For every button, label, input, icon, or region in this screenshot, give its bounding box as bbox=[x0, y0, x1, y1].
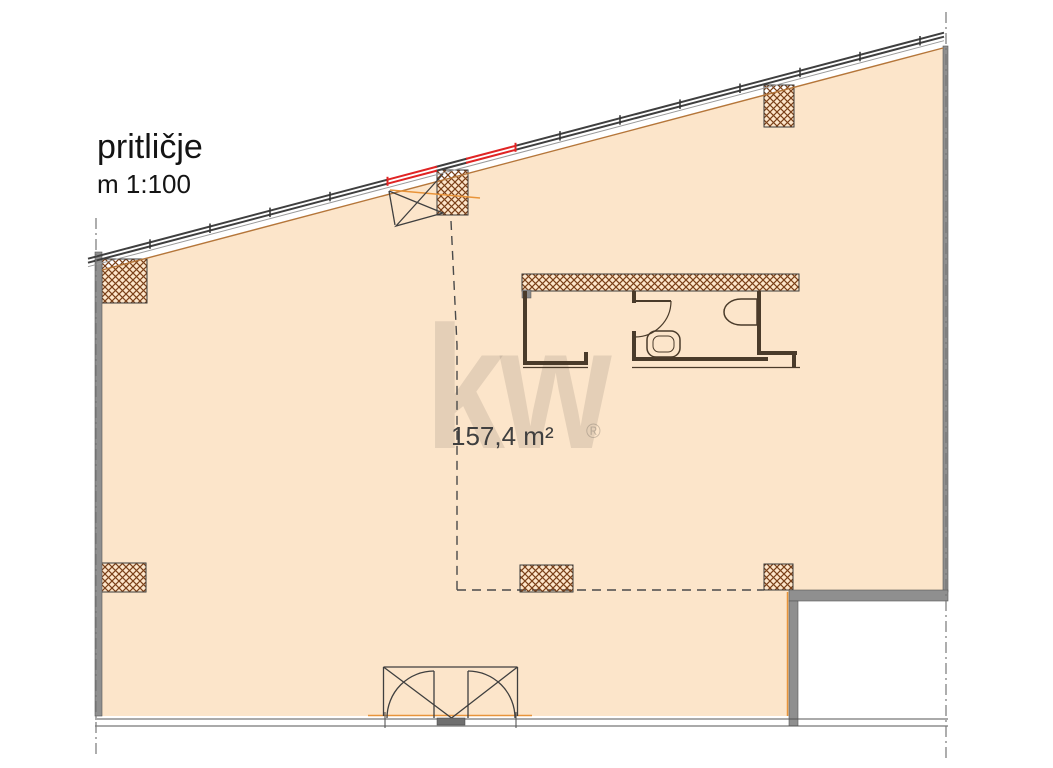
door-threshold bbox=[437, 718, 465, 725]
scale-label: m 1:100 bbox=[97, 169, 191, 199]
column-bottom-middle bbox=[520, 565, 573, 592]
brand-watermark: kw ® bbox=[425, 289, 612, 485]
notch-side-wall bbox=[789, 601, 798, 726]
column-top-left bbox=[102, 259, 147, 303]
area-label: 157,4 m² bbox=[451, 421, 554, 451]
floor-plan-page: kw ® bbox=[0, 0, 1053, 768]
notch-top-wall bbox=[789, 590, 948, 601]
floor-title: pritličje bbox=[97, 128, 203, 166]
watermark-logo-text: kw bbox=[425, 289, 612, 485]
registered-trademark-icon: ® bbox=[586, 421, 601, 443]
column-bottom-right bbox=[764, 564, 793, 590]
floor-plan-drawing: kw ® bbox=[0, 0, 1053, 768]
column-left-mid bbox=[101, 563, 146, 592]
bathroom-hatched-wall bbox=[522, 274, 799, 291]
column-top-middle bbox=[437, 170, 468, 215]
